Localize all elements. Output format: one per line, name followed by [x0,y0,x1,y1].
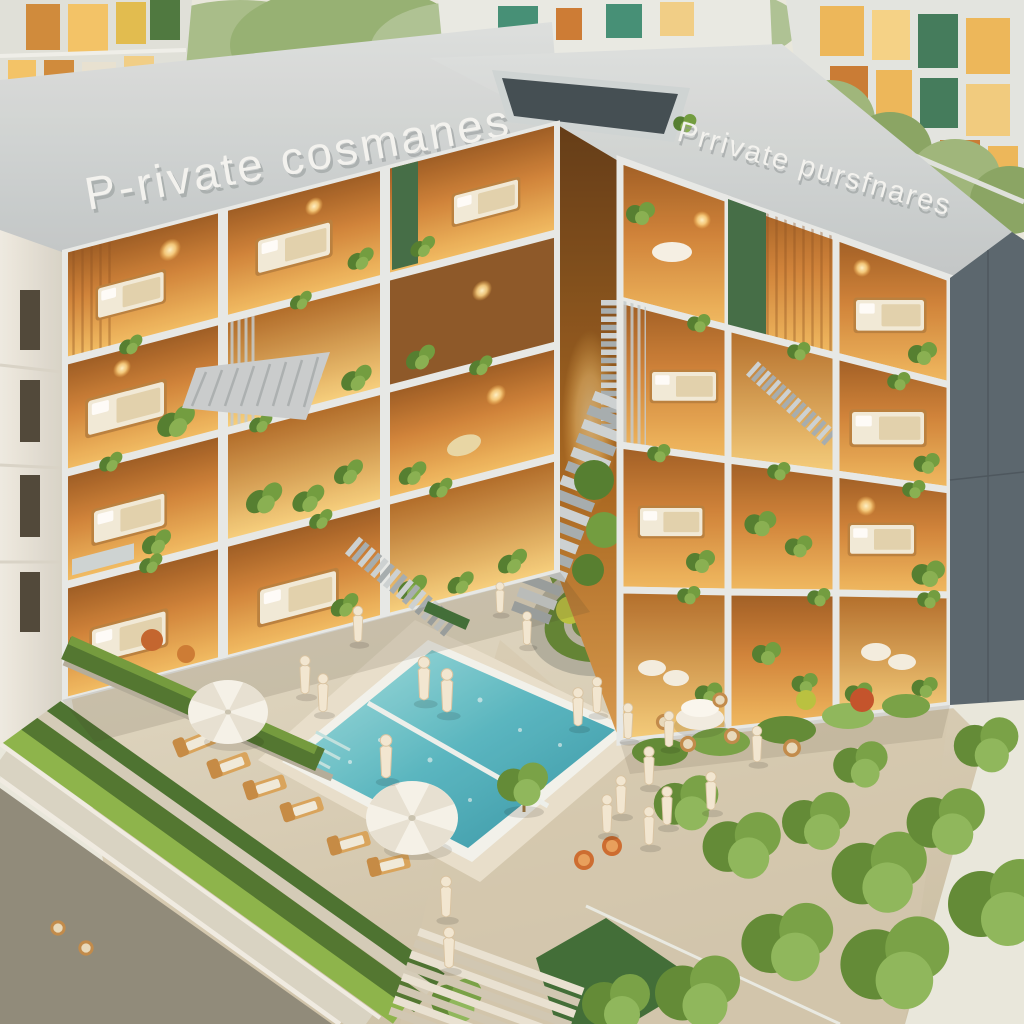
light-wash [0,0,1024,1024]
rendering-scene: P-rivate cosmanes P-rivate cosmanes Prri… [0,0,1024,1024]
apartment-complex-rendering: P-rivate cosmanes P-rivate cosmanes Prri… [0,0,1024,1024]
